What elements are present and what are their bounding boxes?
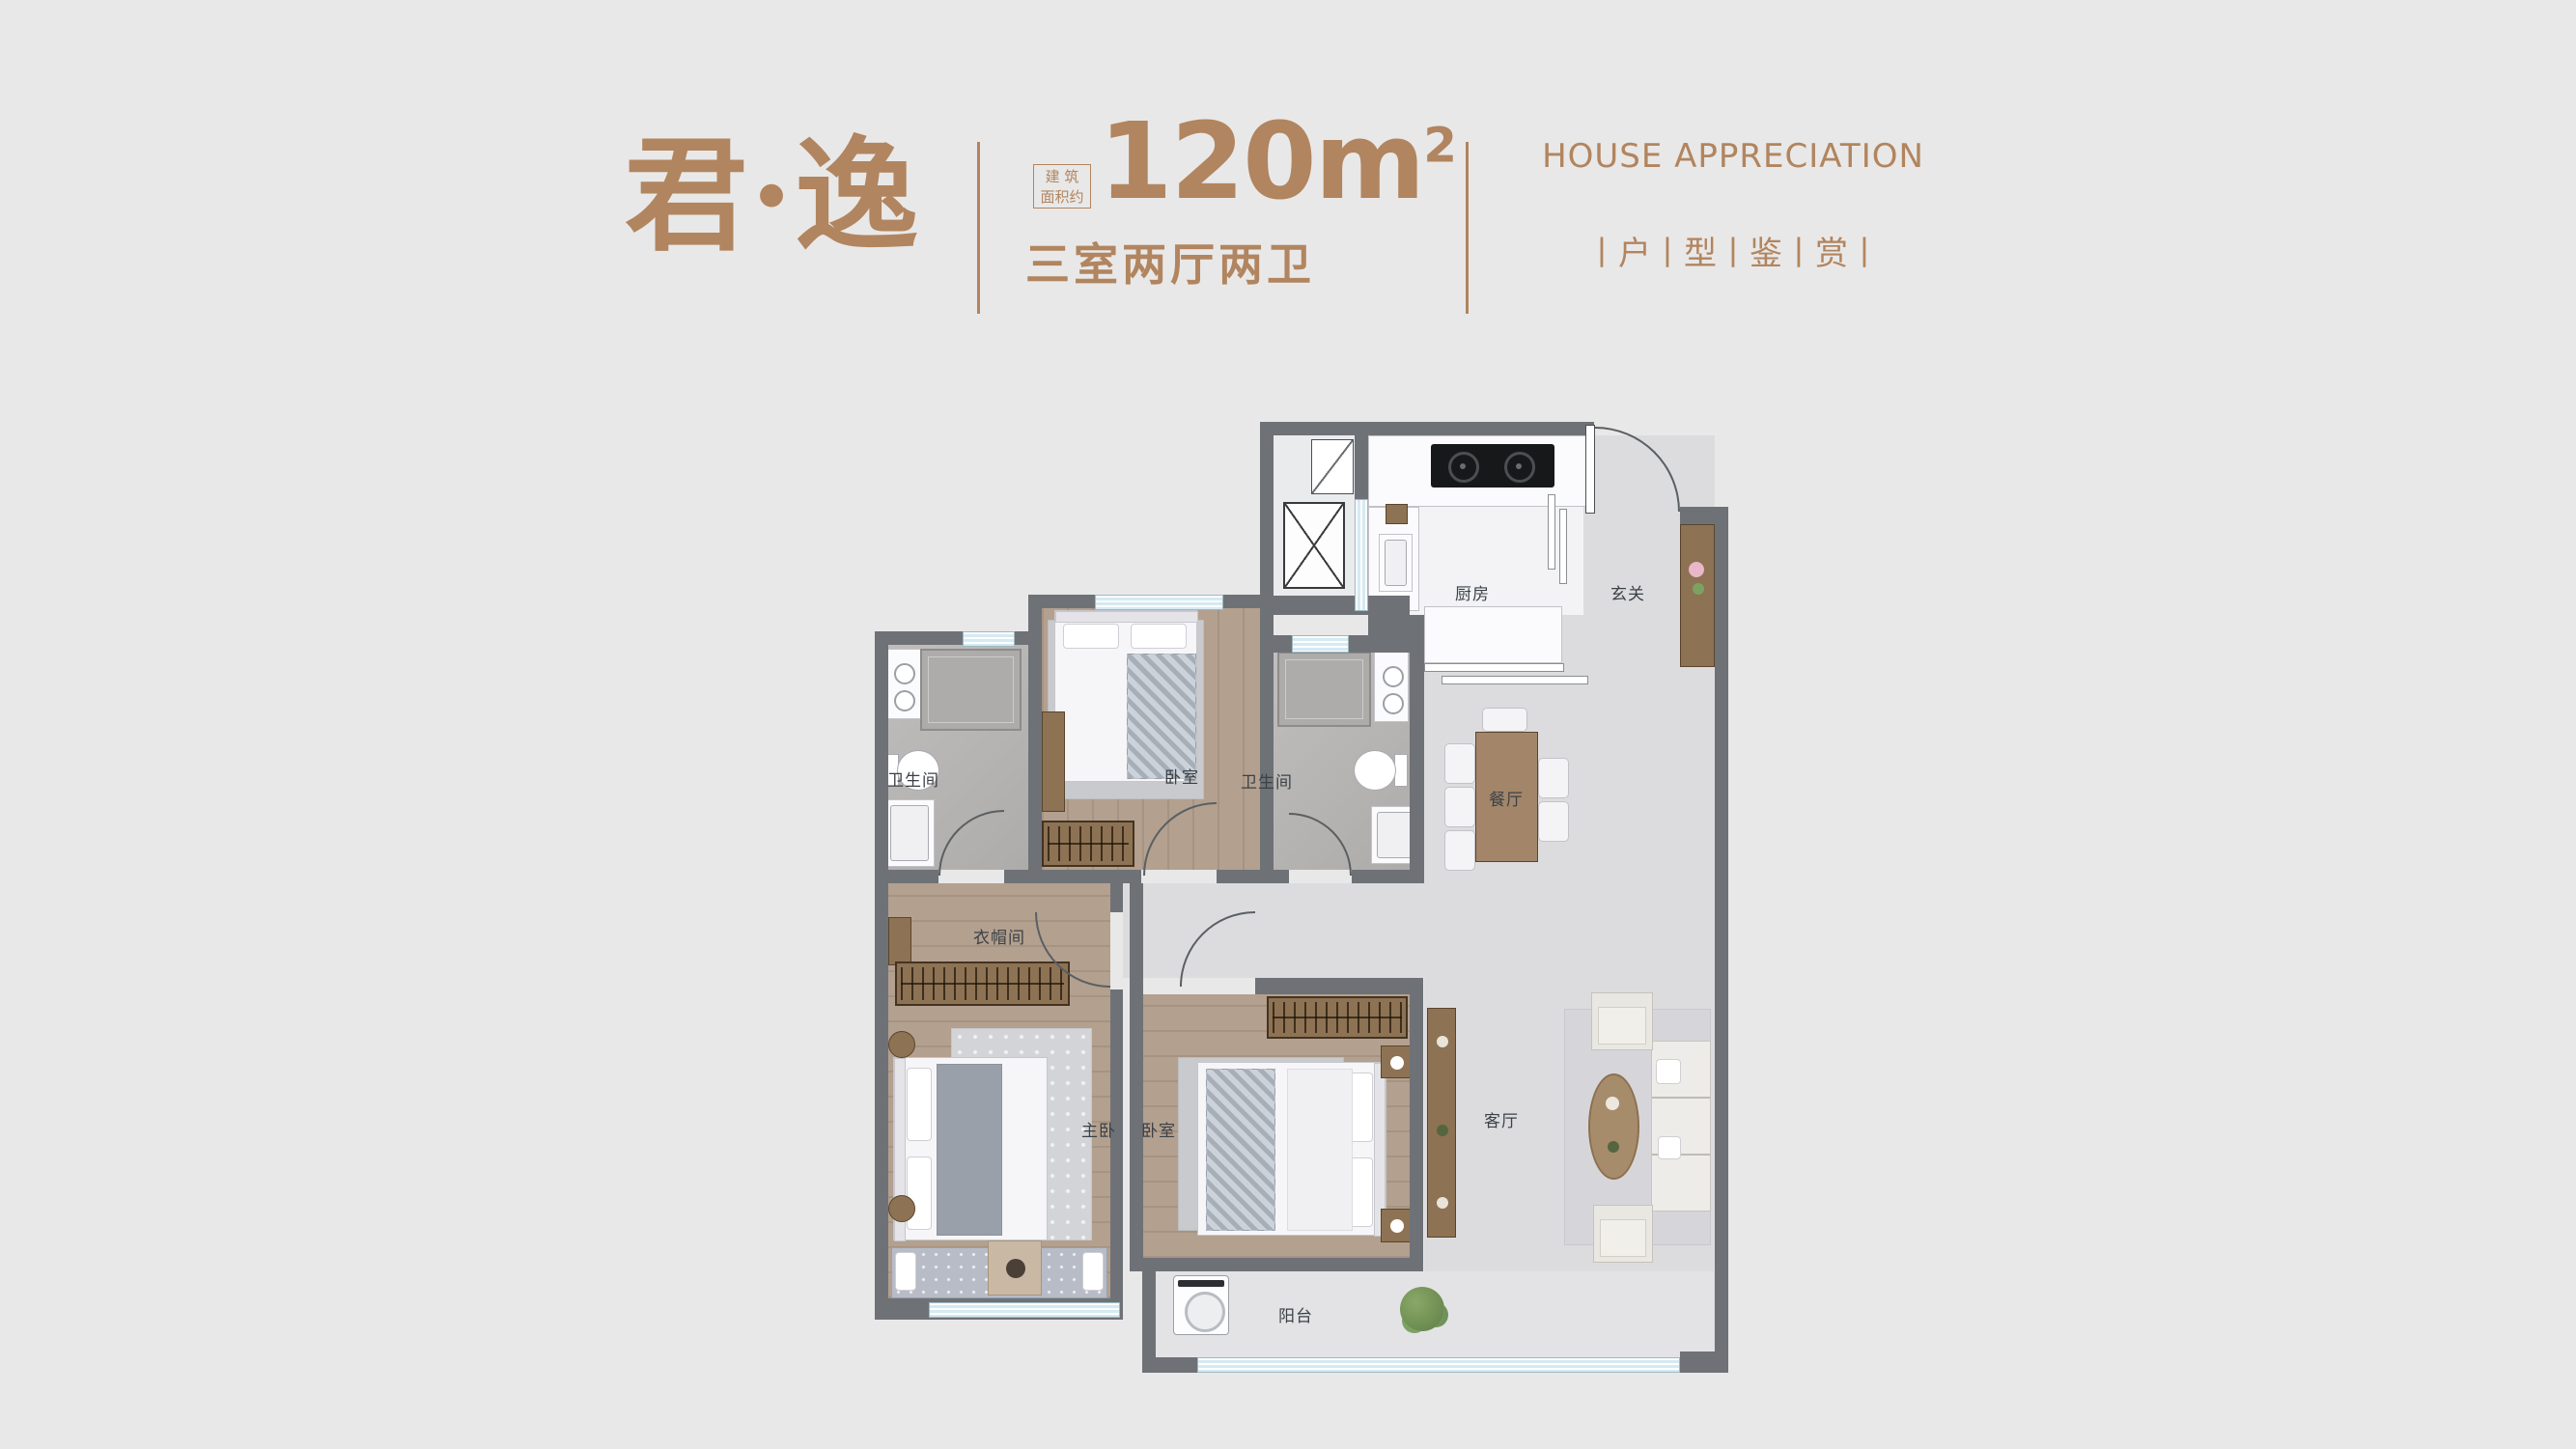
window: [1095, 595, 1223, 610]
kitchen-sink: [1379, 534, 1413, 592]
wall: [1004, 870, 1042, 883]
armchair-cushion: [1598, 1007, 1646, 1045]
headboard: [1055, 611, 1198, 623]
master-bed: [893, 1057, 1048, 1240]
shower-area: [1277, 652, 1371, 727]
toilet-tank: [1394, 754, 1408, 787]
tray-icon: [1006, 1259, 1025, 1278]
decor-icon: [1437, 1036, 1448, 1047]
wall: [1355, 435, 1368, 499]
wall: [1042, 870, 1141, 883]
room-label-bedroom-bottom: 卧室: [1101, 1117, 1217, 1141]
washer-drum-icon: [1185, 1292, 1225, 1332]
wall: [1352, 870, 1410, 883]
flow-arrow-bar: [1548, 494, 1555, 570]
wall: [1715, 507, 1728, 1373]
flower-icon: [1689, 562, 1704, 577]
toilet: [1352, 748, 1408, 791]
nightstand: [888, 1195, 915, 1222]
burner-icon: [1448, 452, 1479, 483]
wall: [1260, 422, 1274, 615]
room-label-bath-left: 卫生间: [855, 766, 971, 791]
armchair: [1591, 992, 1653, 1050]
washer-panel: [1178, 1280, 1224, 1287]
nightstand: [888, 1031, 915, 1058]
nightstand: [1381, 1045, 1412, 1078]
area-badge: 建 筑 面积约: [1033, 164, 1091, 209]
blanket: [1127, 654, 1196, 779]
window: [929, 1302, 1120, 1318]
plant-icon: [1608, 1141, 1619, 1153]
duct-shaft-symbol: [1283, 502, 1345, 589]
header-right: HOUSE APPRECIATION 丨户丨型丨鉴丨赏丨: [1487, 137, 1979, 274]
sofa-pillow: [1656, 1059, 1681, 1084]
stove: [1431, 444, 1554, 488]
room-label-foyer: 玄关: [1570, 580, 1686, 604]
room-label-bath-right: 卫生间: [1209, 768, 1325, 793]
shower-area: [920, 649, 1022, 731]
plant-icon: [1400, 1287, 1444, 1331]
window: [1197, 1357, 1680, 1373]
area-badge-line2: 面积约: [1034, 187, 1090, 208]
wall: [1028, 595, 1042, 883]
room-label-balcony: 阳台: [1238, 1302, 1354, 1326]
shower-tray: [1285, 659, 1363, 719]
kitchen-island: [1424, 606, 1562, 663]
seat-pillow: [1082, 1252, 1104, 1291]
project-title: 君·逸: [579, 124, 966, 268]
window: [963, 631, 1015, 647]
washing-machine: [1173, 1275, 1229, 1335]
wall: [1110, 883, 1123, 912]
pillow: [907, 1068, 932, 1141]
layout-text: 三室两厅两卫: [967, 230, 1373, 293]
wardrobe: [1267, 996, 1408, 1039]
blanket: [1206, 1069, 1275, 1231]
nightstand: [1381, 1209, 1412, 1242]
closet-wardrobe: [895, 961, 1070, 1006]
flow-arrow-bar: [1424, 663, 1564, 672]
duvet: [1287, 1069, 1353, 1231]
sink-bowl-icon: [894, 663, 915, 684]
entry-door-leaf: [1585, 425, 1595, 514]
shower-tray: [928, 656, 1014, 723]
room-label-dining: 餐厅: [1448, 786, 1564, 810]
flow-arrow-bar: [1442, 676, 1588, 684]
armchair-cushion: [1600, 1219, 1646, 1257]
dining-chair: [1482, 708, 1527, 732]
wall: [1410, 978, 1423, 1271]
armchair: [1593, 1205, 1653, 1263]
subtitle-en: HOUSE APPRECIATION: [1487, 137, 1979, 176]
wall: [1260, 422, 1594, 435]
floor-hallway: [1123, 883, 1428, 978]
wall: [1130, 883, 1143, 1258]
wall: [1347, 635, 1410, 653]
seat-table: [988, 1240, 1042, 1296]
closet-cabinet: [888, 917, 911, 965]
vanity-basin: [1377, 812, 1414, 858]
vanity-basin: [890, 805, 929, 861]
room-label-kitchen: 厨房: [1414, 580, 1530, 604]
decor-icon: [1606, 1097, 1619, 1110]
bedside-cabinet: [1042, 711, 1065, 812]
kitchen-wall-art: [1386, 504, 1408, 524]
window: [1292, 635, 1349, 653]
wall: [1255, 978, 1419, 994]
wall: [1142, 1258, 1156, 1373]
plate-icon: [1390, 1219, 1404, 1233]
wall: [1217, 870, 1274, 883]
pillow: [1131, 624, 1187, 649]
hanger-rail-icon: [1048, 826, 1129, 861]
poster: 君·逸 建 筑 面积约 120m2 三室两厅两卫 HOUSE APPRECIAT…: [0, 0, 2576, 1449]
toilet-bowl: [1354, 750, 1396, 791]
subtitle-cn: 丨户丨型丨鉴丨赏丨: [1487, 227, 1979, 274]
hanger-rail-icon: [901, 967, 1064, 1000]
blanket: [937, 1064, 1002, 1236]
sink-basin: [1385, 540, 1407, 586]
seat-pillow: [895, 1252, 916, 1291]
burner-icon: [1504, 452, 1535, 483]
floor-plan: 厨房 玄关 餐厅 客厅 阳台 主卧 卧室 卧室 卫生间 卫生间 衣帽间: [874, 422, 1733, 1378]
hanger-rail-icon: [1273, 1002, 1402, 1033]
bath-left-vanity: [884, 799, 935, 867]
wall: [1410, 615, 1424, 883]
wardrobe: [1042, 821, 1134, 867]
wall: [1274, 870, 1289, 883]
wall: [1260, 595, 1274, 883]
sink-bowl-icon: [894, 690, 915, 711]
dining-chair: [1444, 830, 1475, 871]
dining-chair: [1444, 743, 1475, 784]
sofa-pillow: [1658, 1136, 1681, 1159]
leaf-icon: [1693, 583, 1704, 595]
decor-icon: [1437, 1197, 1448, 1209]
sink-bowl-icon: [1383, 693, 1404, 714]
shaft-window: [1311, 439, 1354, 494]
header-divider-right: [1466, 142, 1469, 314]
wall: [1260, 596, 1368, 615]
wall: [888, 870, 938, 883]
plate-icon: [1390, 1056, 1404, 1070]
wall: [1368, 596, 1410, 635]
area-badge-line1: 建 筑: [1034, 167, 1090, 187]
wall: [1110, 989, 1123, 1320]
window: [1355, 499, 1368, 611]
bath-right-sink-cabinet: [1374, 652, 1409, 722]
sink-bowl-icon: [1383, 666, 1404, 687]
bed-top-bedroom: [1054, 610, 1197, 782]
coffee-table: [1588, 1073, 1639, 1180]
bed-bottom-bedroom: [1197, 1062, 1386, 1236]
bath-left-sink-cabinet: [883, 649, 922, 719]
area-value: 120m2: [1099, 108, 1455, 214]
room-label-closet: 衣帽间: [941, 924, 1057, 948]
room-label-living: 客厅: [1443, 1107, 1559, 1131]
pillow: [1063, 624, 1119, 649]
flow-arrow-bar: [1559, 509, 1567, 584]
wall: [875, 631, 888, 1320]
wall: [1130, 1258, 1410, 1271]
area-superscript: 2: [1423, 117, 1455, 173]
